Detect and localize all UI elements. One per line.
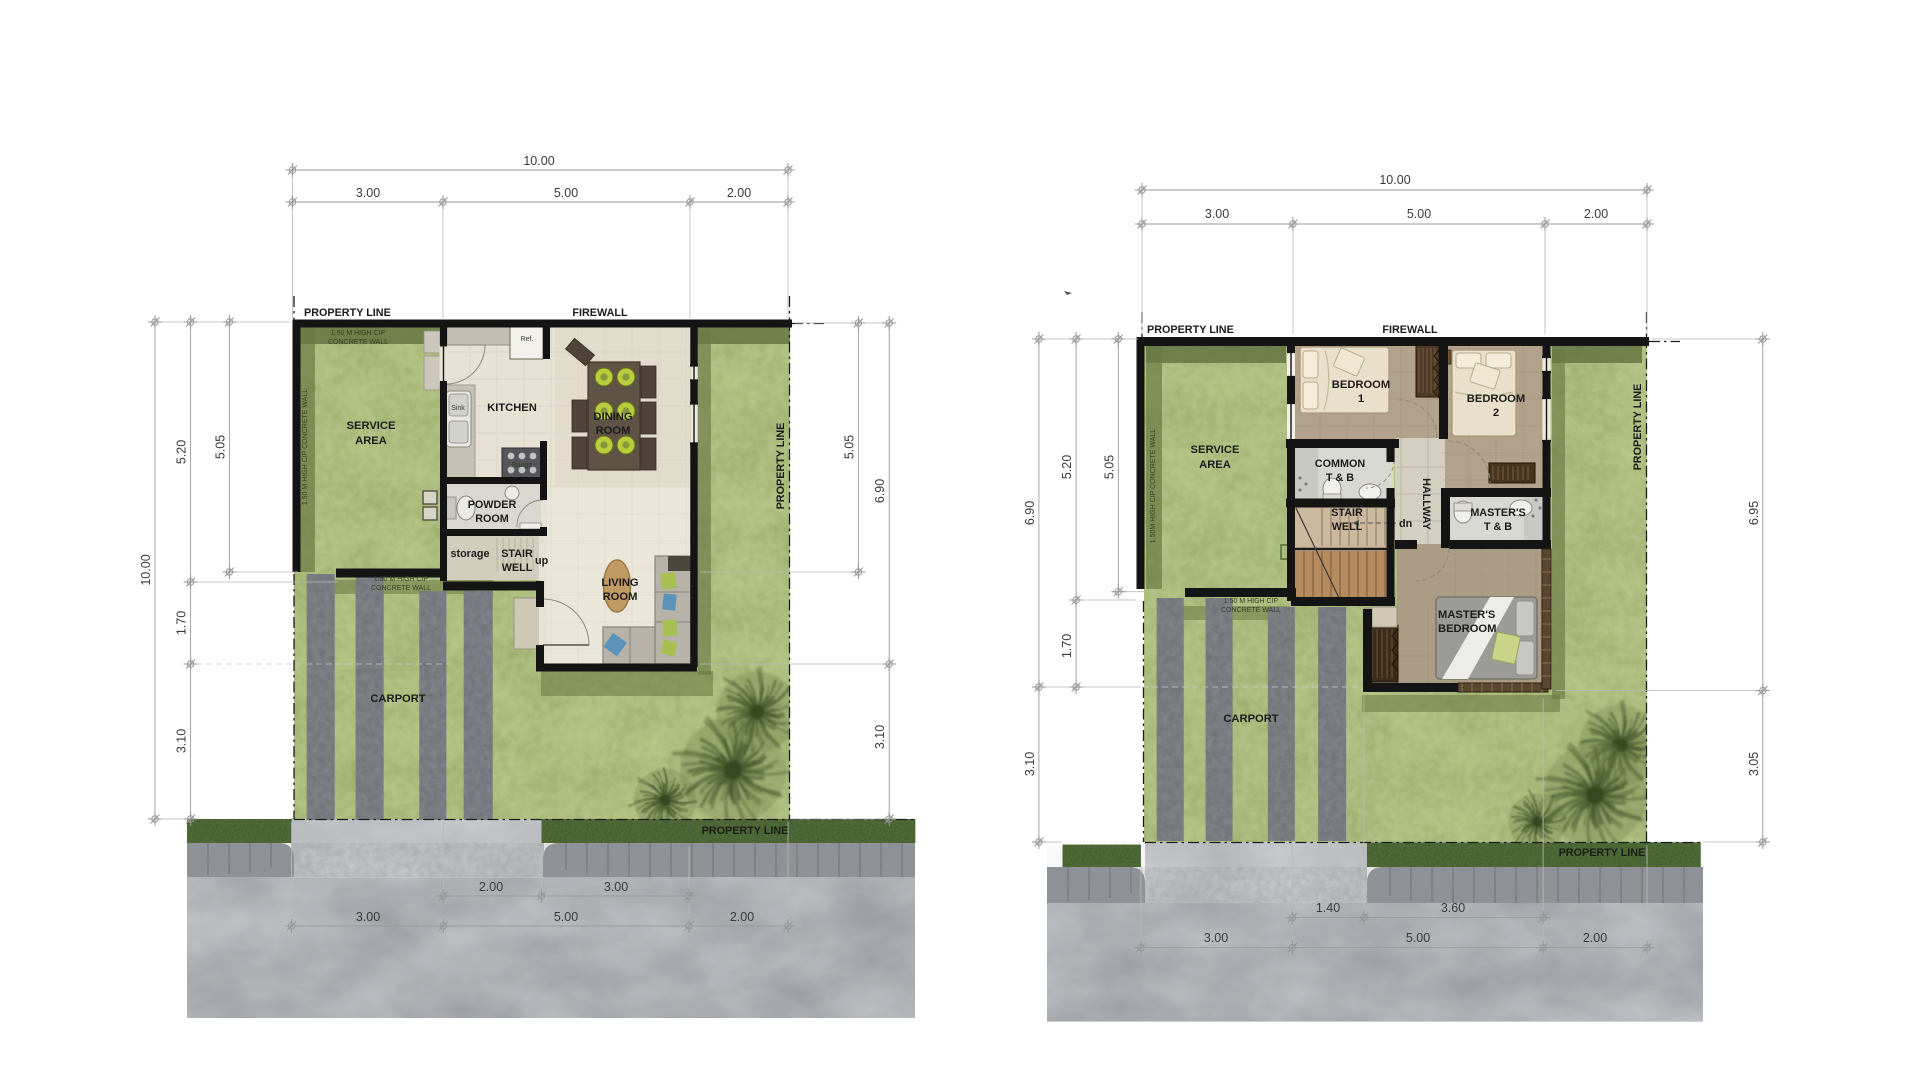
svg-text:3.00: 3.00 <box>1205 207 1229 221</box>
svg-text:6.95: 6.95 <box>1747 501 1761 525</box>
svg-text:ROOM: ROOM <box>475 513 509 525</box>
svg-text:COMMON: COMMON <box>1315 458 1366 470</box>
svg-text:CARPORT: CARPORT <box>370 693 425 705</box>
svg-text:5.00: 5.00 <box>554 910 578 924</box>
svg-text:5.20: 5.20 <box>175 440 189 464</box>
svg-text:T & B: T & B <box>1484 521 1512 533</box>
svg-text:1.50 M HIGH CIP: 1.50 M HIGH CIP <box>331 330 386 337</box>
svg-text:FIREWALL: FIREWALL <box>572 307 628 319</box>
svg-text:CONCRETE WALL: CONCRETE WALL <box>371 585 431 592</box>
svg-text:2.00: 2.00 <box>479 880 503 894</box>
svg-text:BEDROOM: BEDROOM <box>1467 393 1525 405</box>
svg-text:3.05: 3.05 <box>1747 752 1761 776</box>
svg-text:10.00: 10.00 <box>139 554 153 585</box>
svg-text:STAIR: STAIR <box>1331 507 1363 519</box>
svg-text:5.00: 5.00 <box>554 186 578 200</box>
svg-text:SERVICE: SERVICE <box>347 420 396 432</box>
svg-text:5.00: 5.00 <box>1407 207 1431 221</box>
svg-text:10.00: 10.00 <box>1379 173 1410 187</box>
svg-text:3.10: 3.10 <box>1023 752 1037 776</box>
svg-text:1.50 M HIGH CIP: 1.50 M HIGH CIP <box>1224 598 1279 605</box>
svg-text:5.05: 5.05 <box>1102 455 1116 479</box>
svg-text:dn: dn <box>1399 518 1412 530</box>
svg-text:MASTER'S: MASTER'S <box>1470 507 1525 519</box>
svg-text:BEDROOM: BEDROOM <box>1438 623 1496 635</box>
svg-text:5.20: 5.20 <box>1060 455 1074 479</box>
svg-text:3.10: 3.10 <box>175 729 189 753</box>
svg-text:3.00: 3.00 <box>356 186 380 200</box>
svg-text:1.40: 1.40 <box>1316 901 1340 915</box>
svg-text:POWDER: POWDER <box>468 499 517 511</box>
svg-text:LIVING: LIVING <box>601 577 639 589</box>
svg-text:3.00: 3.00 <box>356 910 380 924</box>
svg-text:1.70: 1.70 <box>175 611 189 635</box>
svg-text:AREA: AREA <box>355 435 387 447</box>
svg-text:WELL: WELL <box>1332 521 1363 533</box>
svg-text:3.60: 3.60 <box>1441 901 1465 915</box>
svg-text:6.90: 6.90 <box>873 479 887 503</box>
svg-text:1.50M HIGH CIP CONCRETE WALL: 1.50M HIGH CIP CONCRETE WALL <box>1150 429 1157 543</box>
svg-text:CONCRETE WALL: CONCRETE WALL <box>328 339 388 346</box>
svg-text:5.00: 5.00 <box>1406 931 1430 945</box>
svg-text:T & B: T & B <box>1326 472 1354 484</box>
svg-text:CONCRETE WALL: CONCRETE WALL <box>1221 607 1281 614</box>
svg-text:6.90: 6.90 <box>1023 501 1037 525</box>
svg-text:10.00: 10.00 <box>523 154 554 168</box>
svg-text:WELL: WELL <box>502 562 533 574</box>
svg-text:ROOM: ROOM <box>596 425 631 437</box>
svg-text:PROPERTY LINE: PROPERTY LINE <box>702 825 789 837</box>
svg-text:2.00: 2.00 <box>730 910 754 924</box>
svg-text:FIREWALL: FIREWALL <box>1382 324 1438 336</box>
svg-text:Sink: Sink <box>451 405 465 412</box>
svg-text:2.00: 2.00 <box>1583 931 1607 945</box>
svg-text:1.70: 1.70 <box>1060 634 1074 658</box>
svg-text:ROOM: ROOM <box>603 591 638 603</box>
svg-text:DINING: DINING <box>593 411 632 423</box>
svg-text:1.50 M HIGH CIP CONCRETE WALL: 1.50 M HIGH CIP CONCRETE WALL <box>302 389 309 505</box>
svg-text:Range: Range <box>512 462 533 469</box>
svg-text:MASTER'S: MASTER'S <box>1438 609 1496 621</box>
svg-text:up: up <box>535 555 549 567</box>
svg-text:1.50 M HIGH CIP: 1.50 M HIGH CIP <box>374 576 429 583</box>
svg-text:5.05: 5.05 <box>842 435 856 459</box>
svg-text:STAIR: STAIR <box>501 548 533 560</box>
svg-text:2: 2 <box>1493 407 1499 419</box>
svg-text:3.10: 3.10 <box>873 725 887 749</box>
svg-text:5.05: 5.05 <box>213 435 227 459</box>
svg-text:BEDROOM: BEDROOM <box>1332 379 1390 391</box>
svg-text:Ref.: Ref. <box>521 336 534 343</box>
svg-text:SERVICE: SERVICE <box>1191 444 1240 456</box>
svg-text:3.00: 3.00 <box>1204 931 1228 945</box>
svg-text:3.00: 3.00 <box>604 880 628 894</box>
svg-text:2.00: 2.00 <box>1584 207 1608 221</box>
svg-text:1: 1 <box>1358 393 1364 405</box>
svg-text:CARPORT: CARPORT <box>1223 713 1278 725</box>
svg-text:KITCHEN: KITCHEN <box>487 402 537 414</box>
svg-text:PROPERTY LINE: PROPERTY LINE <box>304 307 391 319</box>
svg-text:HALLWAY: HALLWAY <box>1420 478 1432 531</box>
svg-text:PROPERTY LINE: PROPERTY LINE <box>1559 847 1646 859</box>
svg-text:PROPERTY LINE: PROPERTY LINE <box>1147 324 1234 336</box>
svg-text:PROPERTY LINE: PROPERTY LINE <box>775 423 787 510</box>
svg-text:2.00: 2.00 <box>727 186 751 200</box>
svg-text:storage: storage <box>450 548 489 560</box>
svg-text:PROPERTY LINE: PROPERTY LINE <box>1632 384 1644 471</box>
svg-text:AREA: AREA <box>1199 459 1231 471</box>
